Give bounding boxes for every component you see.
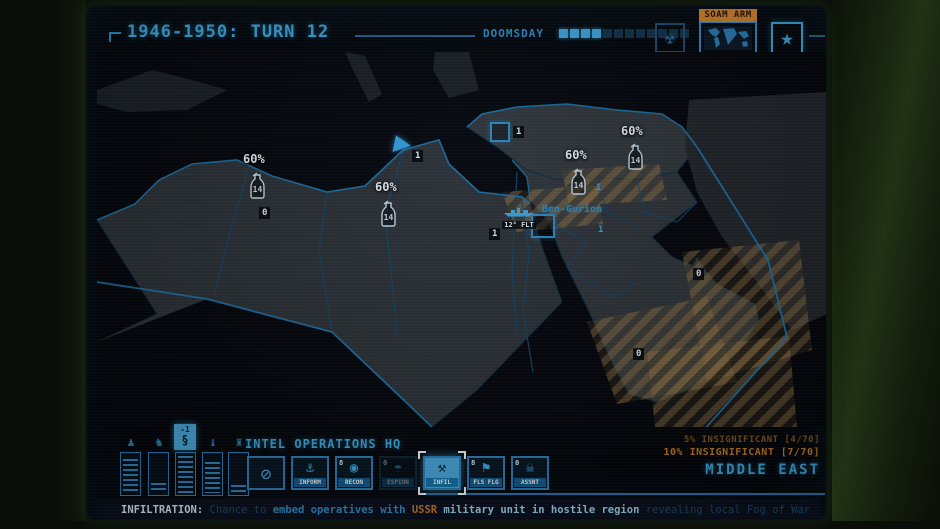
button-label: ESPION (382, 478, 414, 487)
region-select-box[interactable] (490, 122, 510, 142)
stat-gauge-bar (228, 452, 249, 496)
svg-text:14: 14 (253, 185, 263, 194)
tooltip-text-brighter: military unit in hostile region (437, 504, 646, 516)
operative-unit-icon[interactable]: 14 (626, 143, 646, 175)
camera-icon: ◉ (337, 460, 371, 476)
city-label: Ben-Gurion (542, 204, 602, 215)
header-divider-line-right (809, 35, 825, 37)
influence-percent: 60% (243, 152, 265, 166)
soam-arm-badge: SOAM ARM (699, 9, 757, 22)
infiltration-icon: ⚒ (425, 460, 459, 476)
doomsday-block (581, 29, 590, 38)
world-view-button[interactable] (699, 21, 757, 55)
stat-gauge-bar (120, 452, 141, 496)
population-stat-icon: ♟ (120, 434, 142, 450)
inform-icon: ⚓ (293, 460, 327, 476)
button-label: FLS FLG (470, 478, 502, 487)
map-cursor (392, 135, 412, 155)
skull-icon: ☠ (513, 460, 547, 476)
tooltip-text-dim-2: revealing local Fog of War (646, 504, 810, 516)
region-status-line-2: 10% INSIGNIFICANT [7/70] (664, 447, 821, 458)
world-map-icon (704, 26, 752, 50)
doomsday-block (592, 29, 601, 38)
strength-chip: 1 (593, 182, 604, 194)
svg-text:14: 14 (631, 156, 641, 165)
region-name: MIDDLE EAST (705, 462, 820, 478)
influence-percent: 60% (565, 148, 587, 162)
monitor-bezel-bottom (0, 521, 940, 529)
stat-gauge-1[interactable]: ♟ (120, 434, 142, 496)
tooltip-text-dim: Chance to (203, 504, 273, 516)
header-bracket-decoration (109, 32, 121, 42)
strength-chip: 1 (489, 228, 500, 240)
operative-unit-icon[interactable]: 14 (569, 168, 589, 200)
doomsday-block (625, 29, 634, 38)
intel-infiltration-button[interactable]: ⚒ INFIL (423, 456, 461, 490)
intel-inform-button[interactable]: ⚓ INFORM (291, 456, 329, 490)
theater-map[interactable] (97, 52, 827, 427)
stat-gauge-3-selected[interactable]: -1 § (175, 434, 197, 496)
button-label: ASSNT (514, 478, 546, 487)
intel-assassinate-button[interactable]: 0 ☠ ASSNT (511, 456, 549, 490)
doomsday-block (614, 29, 623, 38)
ship-icon (502, 207, 536, 217)
selection-bracket (418, 451, 426, 459)
section-icon: § (174, 434, 196, 446)
military-stat-icon: ♝ (202, 434, 224, 450)
crt-screen: 1946-1950: TURN 12 DOOMSDAY ☢ SOAM ARM ★ (85, 4, 828, 522)
selection-bracket (418, 487, 426, 495)
stat-gauge-bar (175, 452, 196, 496)
strength-chip: 1 (513, 126, 524, 138)
tooltip-text-bright: embed operatives with (273, 504, 412, 516)
stat-gauge-4[interactable]: ♝ (202, 434, 224, 496)
intel-espionage-button[interactable]: 0 ☂ ESPION (379, 456, 417, 490)
cancel-icon: ⊘ (249, 464, 283, 485)
operative-unit-icon[interactable]: 14 (379, 200, 399, 232)
stat-gauge-bar (202, 452, 223, 496)
doomsday-block (559, 29, 568, 38)
doomsday-block (603, 29, 612, 38)
svg-text:14: 14 (574, 181, 584, 190)
turn-title: 1946-1950: TURN 12 (127, 22, 329, 42)
strength-chip: 0 (633, 348, 644, 360)
stat-gauge-2[interactable]: ♞ (148, 434, 170, 496)
selection-bracket (458, 451, 466, 459)
stat-gauge-bar (148, 452, 169, 496)
intel-cancel-button[interactable]: ⊘ (247, 456, 285, 490)
intel-hq-title: INTEL OPERATIONS HQ (245, 437, 401, 451)
button-label: INFORM (294, 478, 326, 487)
region-status-line-1: 5% INSIGNIFICANT [4/70] (684, 435, 820, 445)
umbrella-icon: ☂ (381, 460, 415, 476)
strength-chip: 0 (259, 207, 270, 219)
button-label: RECON (338, 478, 370, 487)
objectives-button[interactable]: ★ (771, 22, 803, 54)
doomsday-block (570, 29, 579, 38)
map-canvas (97, 52, 827, 427)
star-icon: ★ (780, 26, 793, 51)
tooltip-title: INFILTRATION: (121, 504, 203, 516)
economy-stat-badge: -1 § (174, 424, 196, 450)
influence-percent: 60% (375, 180, 397, 194)
panel-divider-line (422, 493, 825, 495)
monitor-bezel-left (0, 0, 86, 529)
doomsday-label: DOOMSDAY (483, 27, 544, 40)
header-divider-line (355, 35, 475, 37)
monitor-bezel-right (832, 0, 940, 529)
intel-false-flag-button[interactable]: 8 ⚑ FLS FLG (467, 456, 505, 490)
button-label: INFIL (426, 478, 458, 487)
tooltip-status-bar: INFILTRATION: Chance to embed operatives… (97, 499, 820, 522)
strength-chip: 0 (693, 268, 704, 280)
operative-unit-icon[interactable]: 14 (248, 172, 268, 204)
fleet-marker[interactable]: 12° FLT (502, 202, 536, 229)
strength-chip: 1 (412, 150, 423, 162)
unrest-stat-icon: ♞ (148, 434, 170, 450)
nuclear-arsenal-button[interactable]: ☢ (655, 23, 685, 53)
radiation-icon: ☢ (665, 29, 675, 48)
svg-text:14: 14 (384, 213, 394, 222)
doomsday-block (636, 29, 645, 38)
selection-bracket (458, 487, 466, 495)
strength-chip: 1 (595, 224, 606, 236)
influence-percent: 60% (621, 124, 643, 138)
tooltip-ussr-keyword: USSR (412, 504, 437, 516)
flag-icon: ⚑ (469, 460, 503, 476)
intel-recon-button[interactable]: 8 ◉ RECON (335, 456, 373, 490)
fleet-label: 12° FLT (502, 221, 536, 229)
